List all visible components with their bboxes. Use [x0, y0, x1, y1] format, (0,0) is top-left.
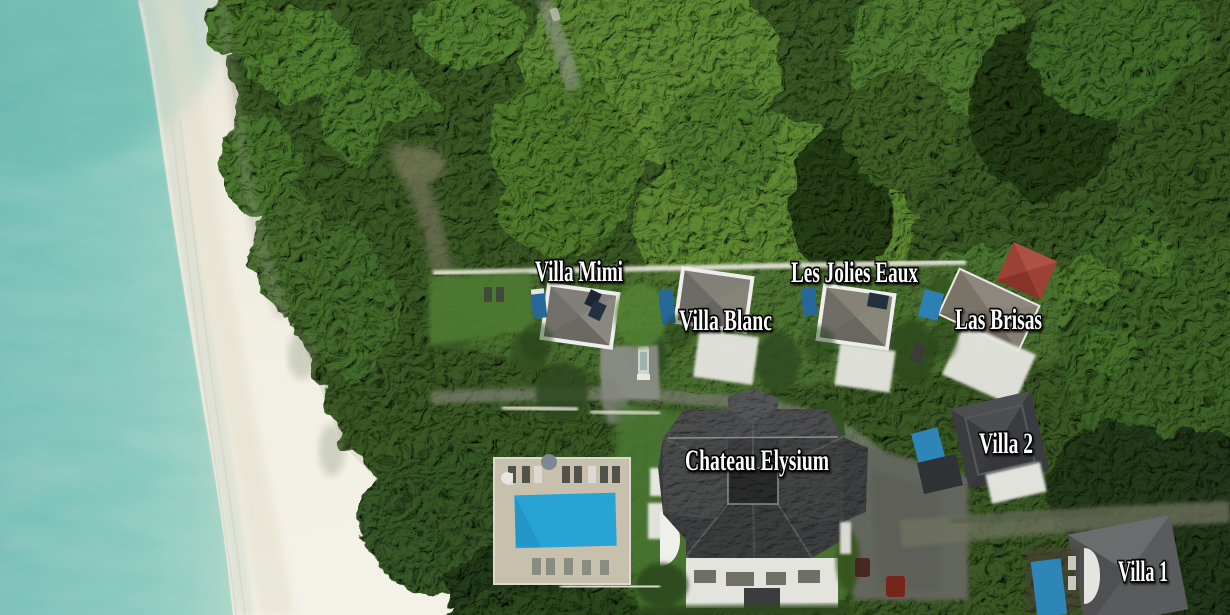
svg-text:Villa Blanc: Villa Blanc: [679, 304, 772, 337]
svg-text:Villa 1: Villa 1: [1118, 555, 1168, 588]
svg-text:Les Jolies Eaux: Les Jolies Eaux: [791, 256, 918, 289]
svg-text:Villa 2: Villa 2: [979, 427, 1033, 460]
svg-text:Villa Mimi: Villa Mimi: [535, 255, 623, 288]
svg-text:Chateau Elysium: Chateau Elysium: [685, 444, 829, 477]
svg-text:Las Brisas: Las Brisas: [955, 303, 1042, 336]
